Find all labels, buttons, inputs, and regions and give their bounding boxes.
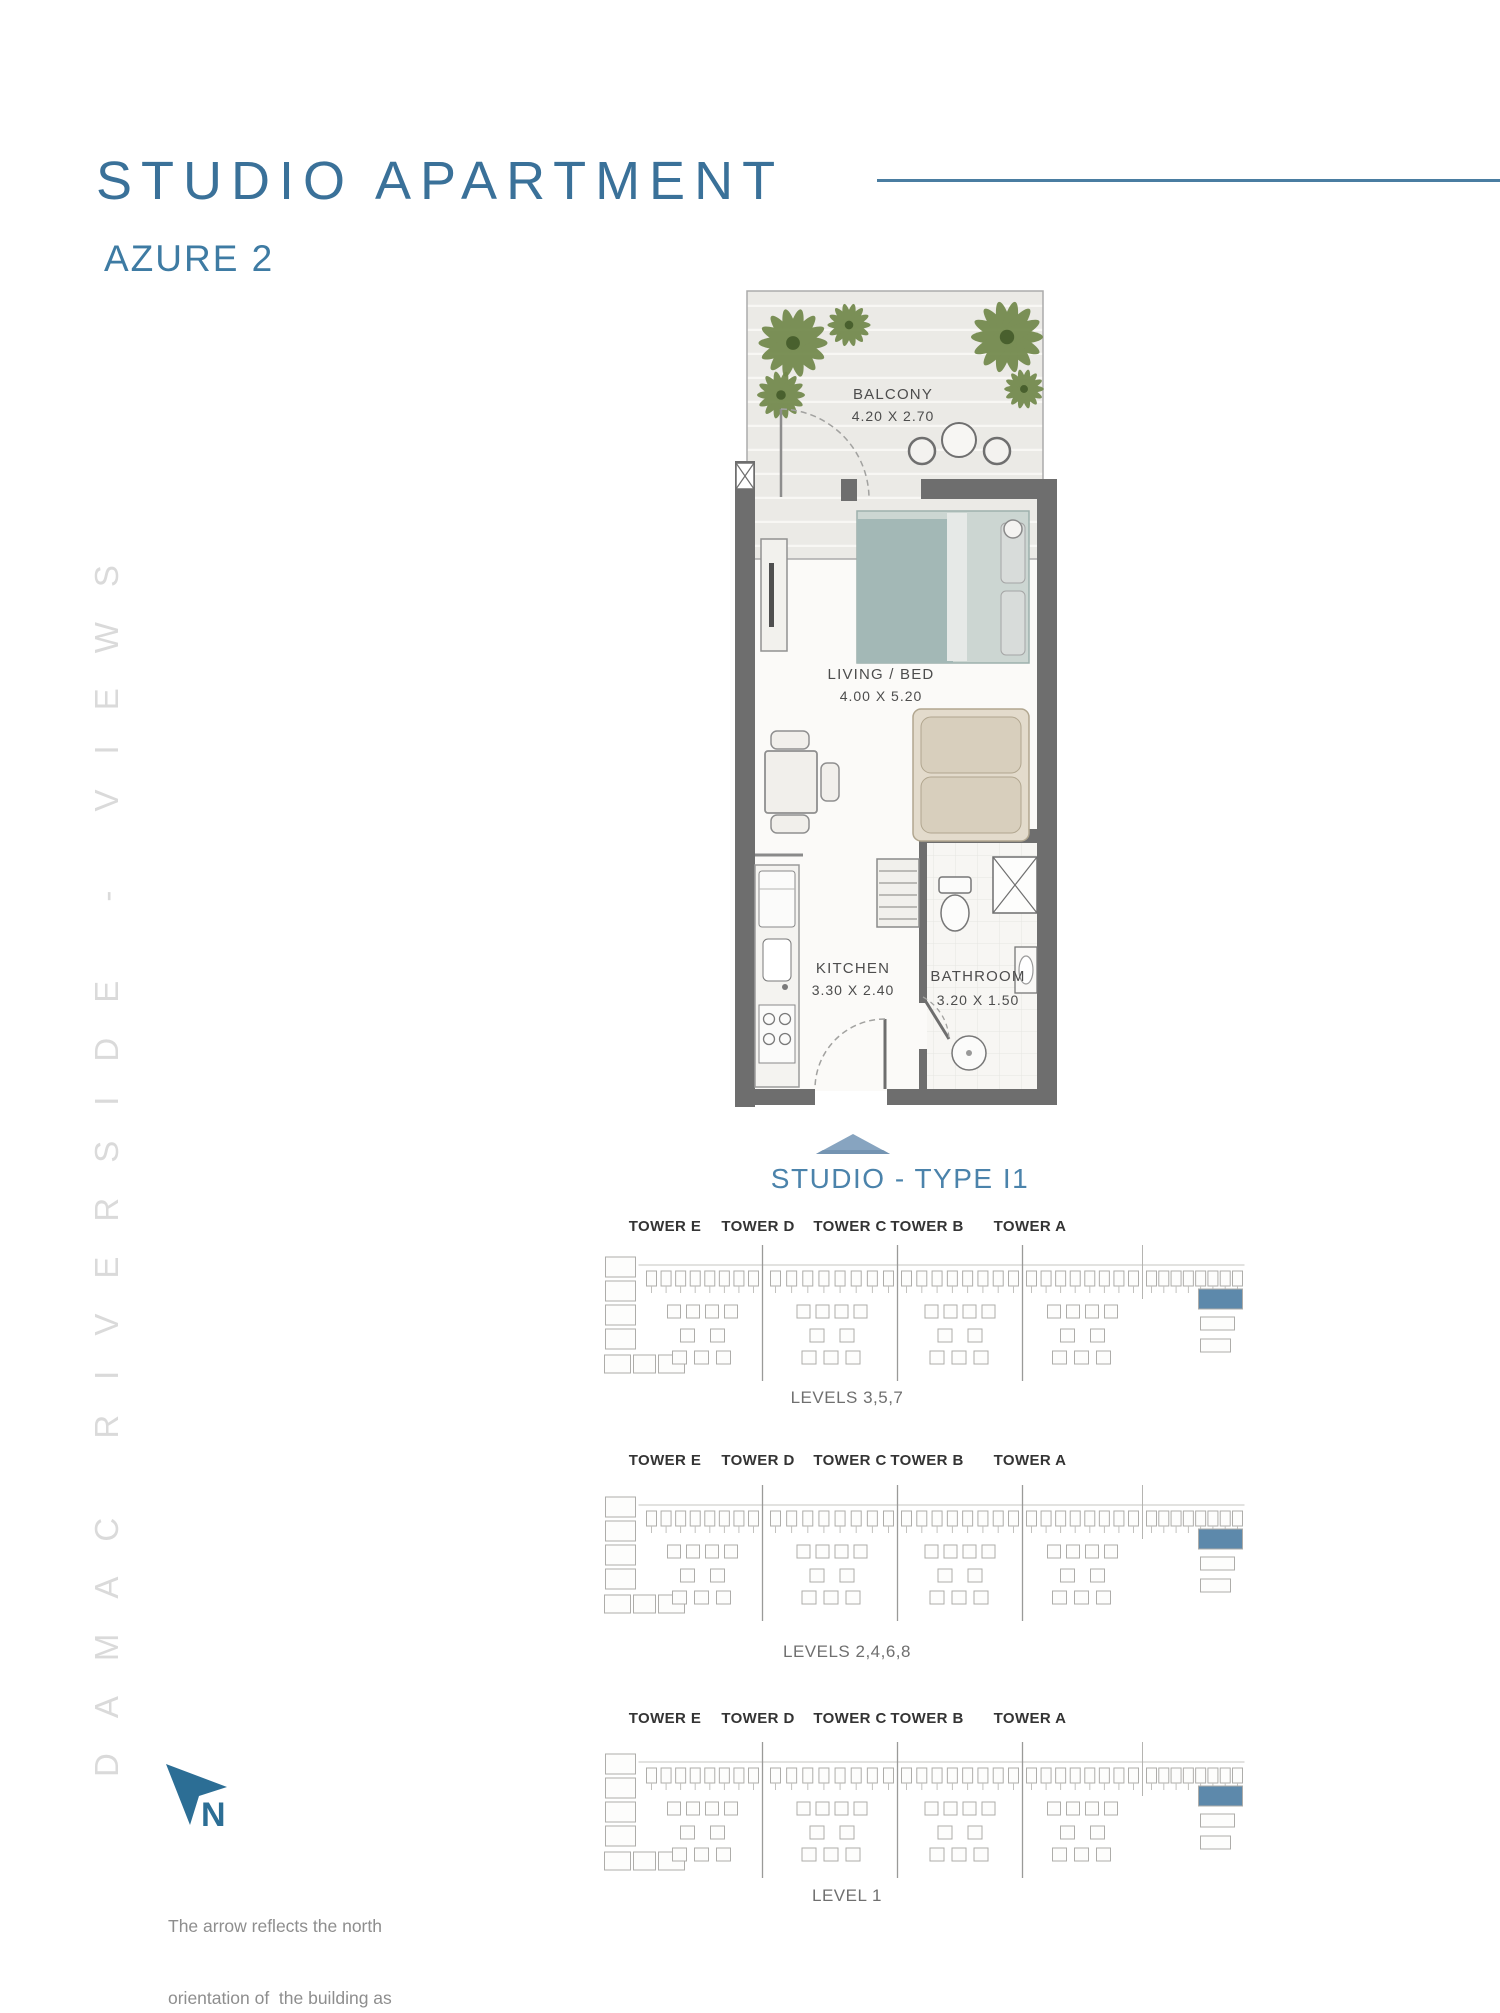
- key-plan-diagram: [600, 1483, 1250, 1623]
- room-label-balcony: BALCONY: [853, 386, 933, 403]
- tower-label: TOWER E: [629, 1218, 702, 1235]
- balcony-chair: [984, 438, 1010, 464]
- north-label: N: [201, 1796, 226, 1835]
- tower-label: TOWER B: [890, 1218, 963, 1235]
- tower-label: TOWER C: [813, 1452, 886, 1469]
- room-dims-bathroom: 3.20 X 1.50: [937, 992, 1020, 1008]
- room-dims-balcony: 4.20 X 2.70: [852, 408, 935, 424]
- tower-label: TOWER D: [721, 1710, 794, 1727]
- project-name: AZURE 2: [104, 238, 274, 280]
- sofa: [913, 709, 1029, 841]
- tower-label: TOWER C: [813, 1710, 886, 1727]
- level-caption: LEVELS 3,5,7: [791, 1388, 904, 1408]
- room-label-living-bed: LIVING / BED: [828, 666, 935, 683]
- tower-label: TOWER E: [629, 1710, 702, 1727]
- tower-label: TOWER C: [813, 1218, 886, 1235]
- level-caption: LEVELS 2,4,6,8: [783, 1642, 911, 1662]
- tower-label: TOWER B: [890, 1710, 963, 1727]
- note-line: orientation of the building as: [168, 1986, 392, 2010]
- balcony-table: [942, 423, 976, 457]
- page-title: STUDIO APARTMENT: [96, 150, 784, 212]
- tower-label: TOWER A: [994, 1452, 1067, 1469]
- tower-label: TOWER E: [629, 1452, 702, 1469]
- closet: [877, 859, 919, 927]
- unit-type-label: STUDIO - TYPE I1: [771, 1163, 1029, 1195]
- tower-label: TOWER A: [994, 1218, 1067, 1235]
- north-orientation-note: The arrow reflects the north orientation…: [168, 1866, 392, 2013]
- unit-pointer-icon: [815, 1133, 891, 1160]
- room-dims-kitchen: 3.30 X 2.40: [812, 982, 895, 998]
- balcony-chair: [909, 438, 935, 464]
- level-caption: LEVEL 1: [812, 1886, 882, 1906]
- title-rule: [877, 179, 1500, 182]
- tower-label: TOWER D: [721, 1218, 794, 1235]
- shaft: [993, 857, 1037, 913]
- shower: [952, 1036, 986, 1070]
- floor-plan-drawing: BALCONY 4.20 X 2.70: [735, 283, 1075, 1143]
- bed: [857, 511, 1029, 663]
- stove: [759, 1005, 795, 1063]
- tower-label: TOWER B: [890, 1452, 963, 1469]
- key-plan-diagram: [600, 1243, 1250, 1383]
- key-plan-diagram: [600, 1740, 1250, 1880]
- room-label-bathroom: BATHROOM: [930, 968, 1025, 985]
- toilet: [939, 877, 971, 931]
- tower-label: TOWER A: [994, 1710, 1067, 1727]
- note-line: The arrow reflects the north: [168, 1914, 392, 1938]
- kitchen-sink: [763, 939, 791, 981]
- room-dims-living-bed: 4.00 X 5.20: [840, 688, 923, 704]
- room-label-kitchen: KITCHEN: [816, 960, 890, 977]
- vertical-brand-text: DAMAC RIVERSIDE - VIEWS: [88, 492, 126, 1777]
- brochure-page: STUDIO APARTMENT AZURE 2 DAMAC RIVERSIDE…: [0, 0, 1500, 2013]
- tower-label: TOWER D: [721, 1452, 794, 1469]
- floor-plan: BALCONY 4.20 X 2.70: [735, 283, 1075, 1143]
- column-marker: [736, 463, 754, 489]
- fridge: [759, 871, 795, 927]
